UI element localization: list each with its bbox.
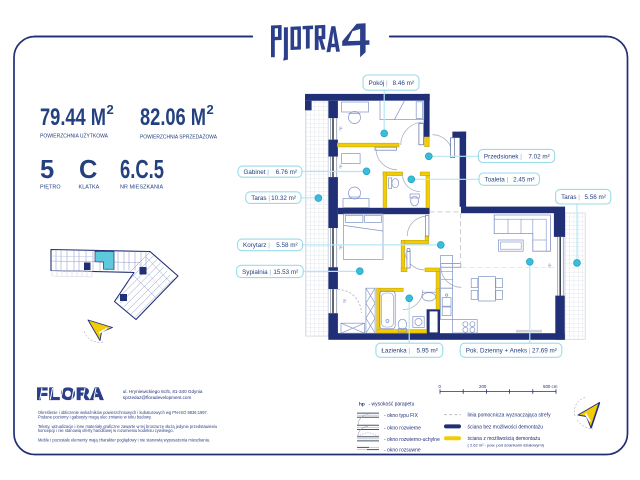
svg-text:C: C (79, 156, 97, 184)
svg-text:5.58 m²: 5.58 m² (276, 242, 297, 249)
svg-text:2: 2 (207, 102, 214, 117)
svg-text:Pokój |: Pokój | (369, 80, 389, 87)
svg-text:ściana z możliwością demontażu: ściana z możliwością demontażu (468, 436, 541, 442)
svg-text:ul. Hryniewickiego 6c/5, 81-34: ul. Hryniewickiego 6c/5, 81-340 Gdynia (123, 389, 203, 394)
svg-text:- wysokość parapetu: - wysokość parapetu (369, 402, 415, 408)
svg-text:Przedsionek |: Przedsionek | (484, 153, 522, 160)
svg-text:PIĘTRO: PIĘTRO (40, 185, 61, 191)
svg-text:POWIERZCHNIA SPRZEDAŻOWA: POWIERZCHNIA SPRZEDAŻOWA (140, 134, 217, 141)
svg-text:79.44 M: 79.44 M (40, 104, 106, 131)
svg-text:82.06 M: 82.06 M (140, 104, 206, 131)
svg-text:7.02 m²: 7.02 m² (528, 153, 549, 160)
svg-text:Toaleta |: Toaleta | (485, 176, 509, 183)
svg-text:ściana bez możliwości demontaż: ściana bez możliwości demontażu (468, 424, 544, 430)
svg-text:Korytarz |: Korytarz | (243, 242, 270, 249)
svg-text:27.69 m²: 27.69 m² (532, 348, 557, 355)
svg-text:6.C.5: 6.C.5 (120, 156, 164, 184)
svg-text:KLATKA: KLATKA (79, 185, 100, 191)
svg-text:koncepcji i nie stanowią ofert: koncepcji i nie stanowią oferty handlowe… (38, 428, 174, 433)
svg-text:hp: hp (548, 264, 552, 268)
svg-text:- okno rozwierno-uchylne: - okno rozwierno-uchylne (384, 437, 440, 443)
svg-text:POWIERZCHNIA UŻYTKOWA: POWIERZCHNIA UŻYTKOWA (40, 133, 108, 140)
svg-text:Podane poziomy i gabaryty mogą: Podane poziomy i gabaryty mogą ulec zmia… (38, 414, 152, 419)
svg-text:Taras |: Taras | (251, 195, 270, 202)
svg-text:200: 200 (479, 384, 487, 389)
svg-text:Meble i pozostałe elementy maj: Meble i pozostałe elementy mają charakte… (38, 438, 210, 443)
svg-text:Taras |: Taras | (561, 194, 580, 201)
svg-text:0: 0 (439, 384, 442, 389)
svg-text:Pok. Dzienny + Aneks |: Pok. Dzienny + Aneks | (466, 348, 531, 355)
svg-text:10.32 m²: 10.32 m² (271, 195, 296, 202)
svg-text:8.46 m²: 8.46 m² (393, 80, 414, 87)
svg-text:hp: hp (339, 246, 343, 250)
svg-text:Sypialnia |: Sypialnia | (242, 269, 271, 276)
svg-text:NR MIESZKANIA: NR MIESZKANIA (120, 185, 164, 191)
svg-text:hp: hp (359, 402, 365, 408)
svg-text:15.53 m²: 15.53 m² (273, 269, 298, 276)
svg-text:hp: hp (343, 299, 347, 303)
svg-text:sprzedaz@floradevelopment.com: sprzedaz@floradevelopment.com (123, 395, 192, 400)
svg-text:5.56 m²: 5.56 m² (584, 194, 605, 201)
svg-text:- okno rozwierne: - okno rozwierne (384, 425, 421, 431)
svg-text:6.76 m²: 6.76 m² (276, 169, 297, 176)
svg-text:Łazienka |: Łazienka | (381, 348, 410, 355)
svg-text:5: 5 (40, 156, 54, 184)
svg-text:hp: hp (339, 127, 343, 131)
svg-text:hp: hp (339, 165, 343, 169)
svg-text:linia pomocnicza wyznaczająca: linia pomocnicza wyznaczająca strefy (468, 413, 552, 419)
svg-text:( 2.62 m² - pow. pod ściankam: ( 2.62 m² - pow. pod ściankami działowym… (468, 442, 545, 447)
svg-text:500 cm: 500 cm (543, 384, 558, 389)
svg-text:2: 2 (107, 102, 114, 117)
svg-text:2.45 m²: 2.45 m² (513, 176, 534, 183)
svg-text:5.95 m²: 5.95 m² (416, 348, 437, 355)
svg-text:FLORA: FLORA (37, 385, 105, 404)
svg-text:- okno rozsuwne: - okno rozsuwne (384, 447, 421, 453)
svg-text:- okno typu FIX: - okno typu FIX (384, 413, 419, 419)
svg-text:Gabinet |: Gabinet | (244, 169, 270, 176)
